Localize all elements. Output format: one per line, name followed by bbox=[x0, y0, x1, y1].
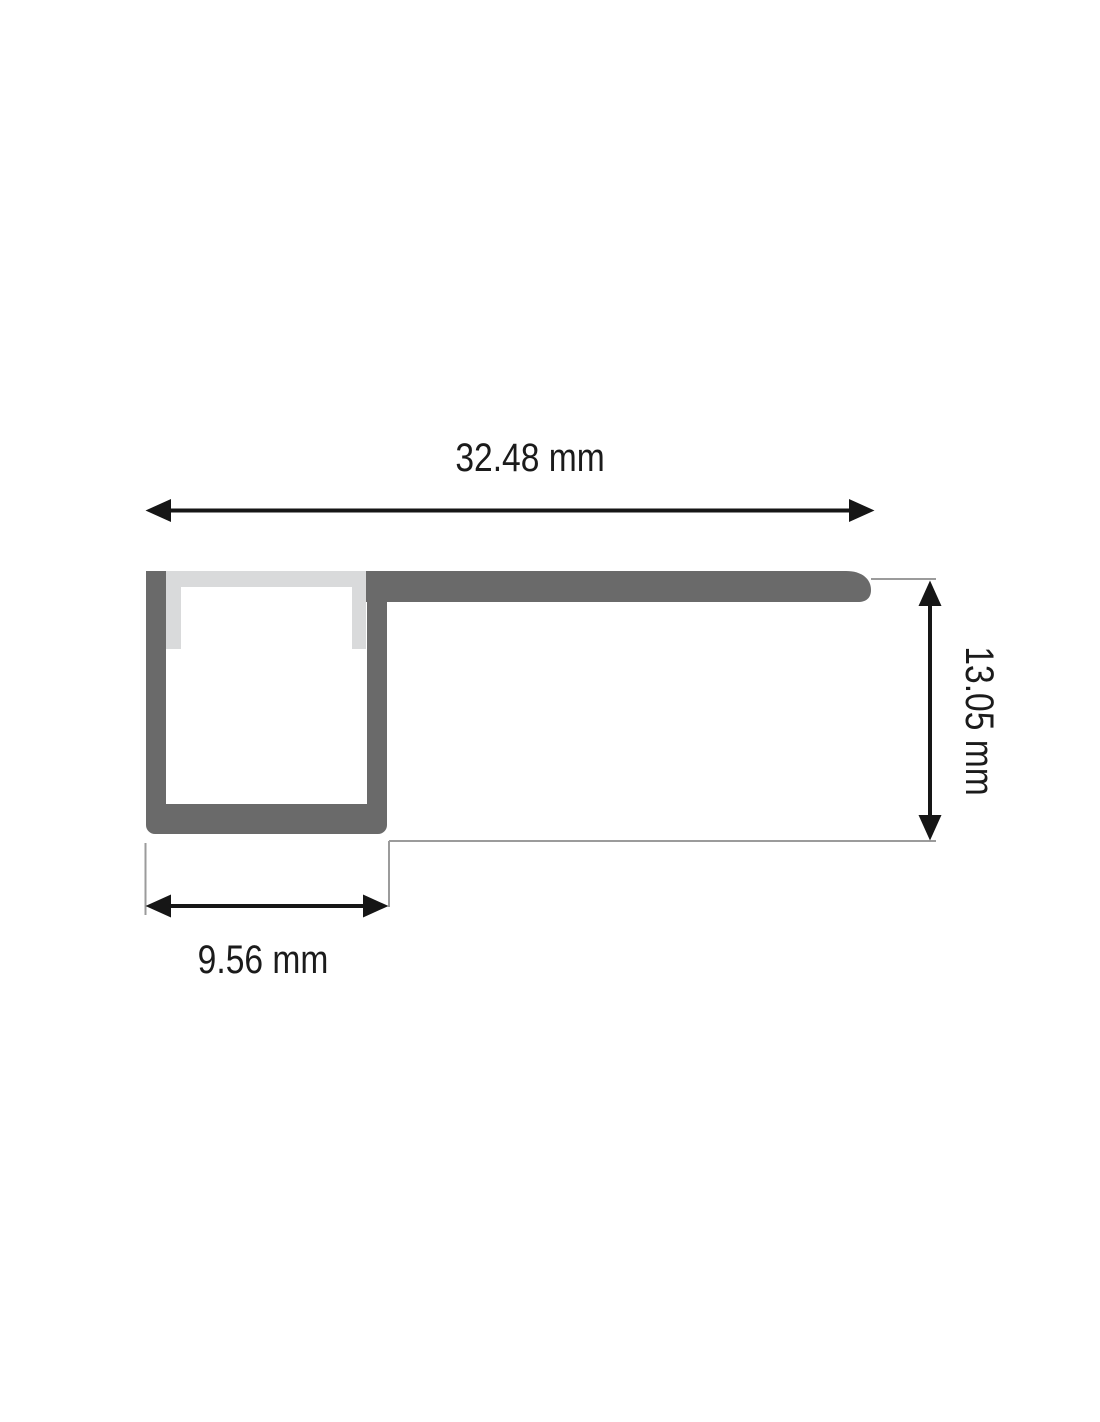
svg-text:32.48 mm: 32.48 mm bbox=[455, 435, 604, 479]
svg-text:9.56 mm: 9.56 mm bbox=[198, 937, 329, 981]
svg-text:13.05 mm: 13.05 mm bbox=[957, 646, 1001, 795]
